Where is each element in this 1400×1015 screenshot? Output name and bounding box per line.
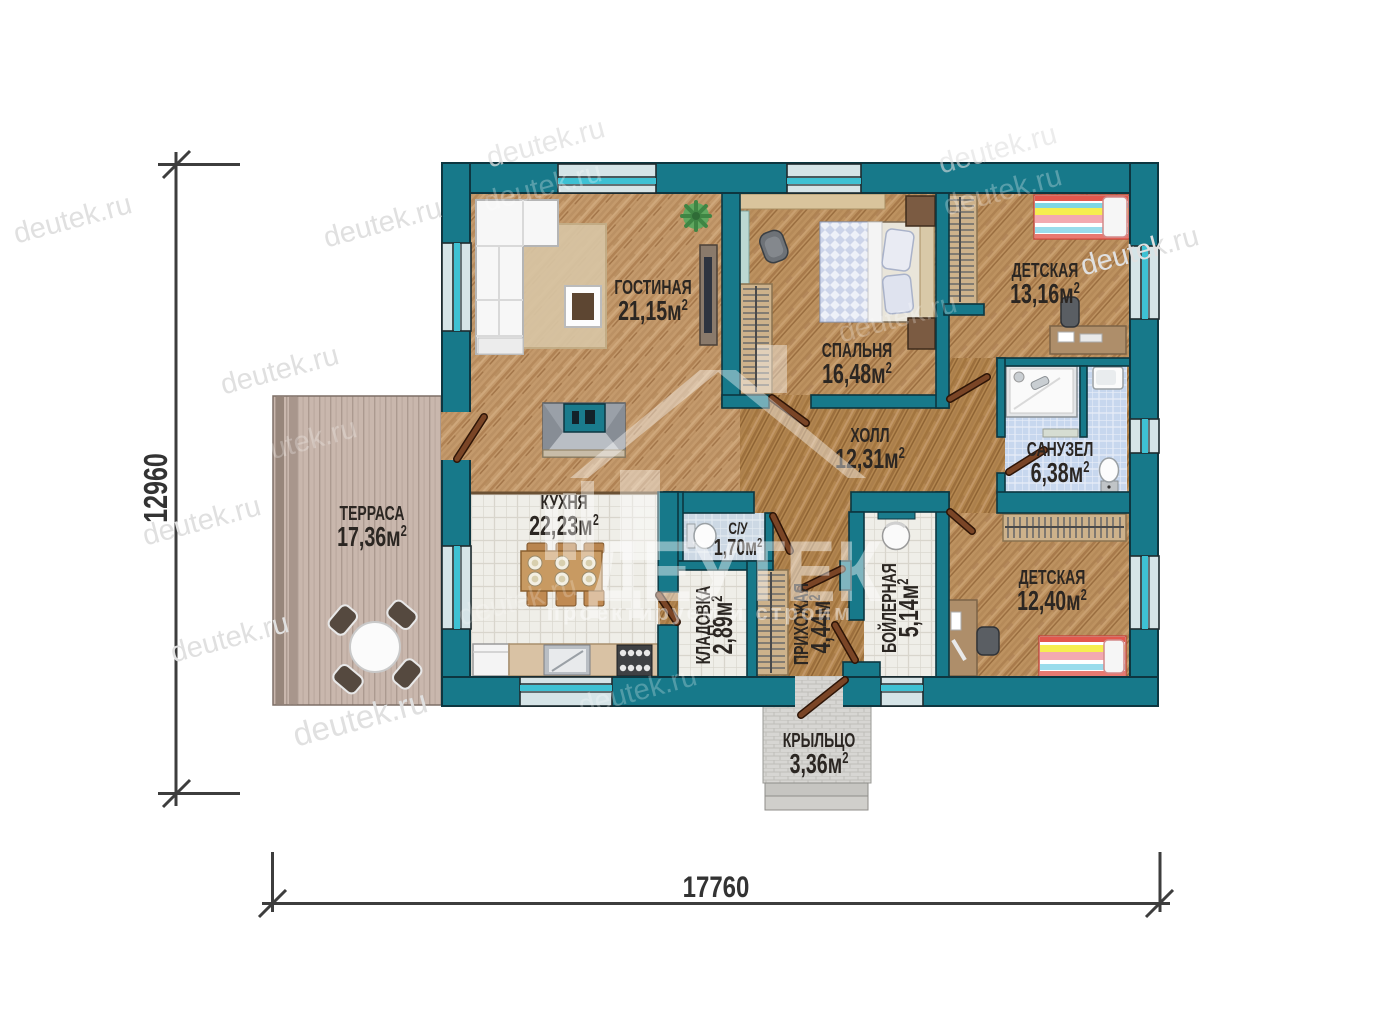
svg-text:6,38м2: 6,38м2	[1031, 457, 1090, 489]
svg-text:3,36м2: 3,36м2	[790, 748, 849, 780]
svg-text:проектируем и строим: проектируем и строим	[547, 600, 853, 625]
svg-text:12,40м2: 12,40м2	[1017, 585, 1087, 617]
svg-text:17,36м2: 17,36м2	[337, 521, 407, 553]
svg-text:17760: 17760	[683, 869, 750, 903]
svg-text:5,14м2: 5,14м2	[893, 578, 925, 637]
svg-text:16,48м2: 16,48м2	[822, 358, 892, 390]
svg-text:21,15м2: 21,15м2	[618, 295, 688, 327]
svg-text:13,16м2: 13,16м2	[1010, 278, 1080, 310]
